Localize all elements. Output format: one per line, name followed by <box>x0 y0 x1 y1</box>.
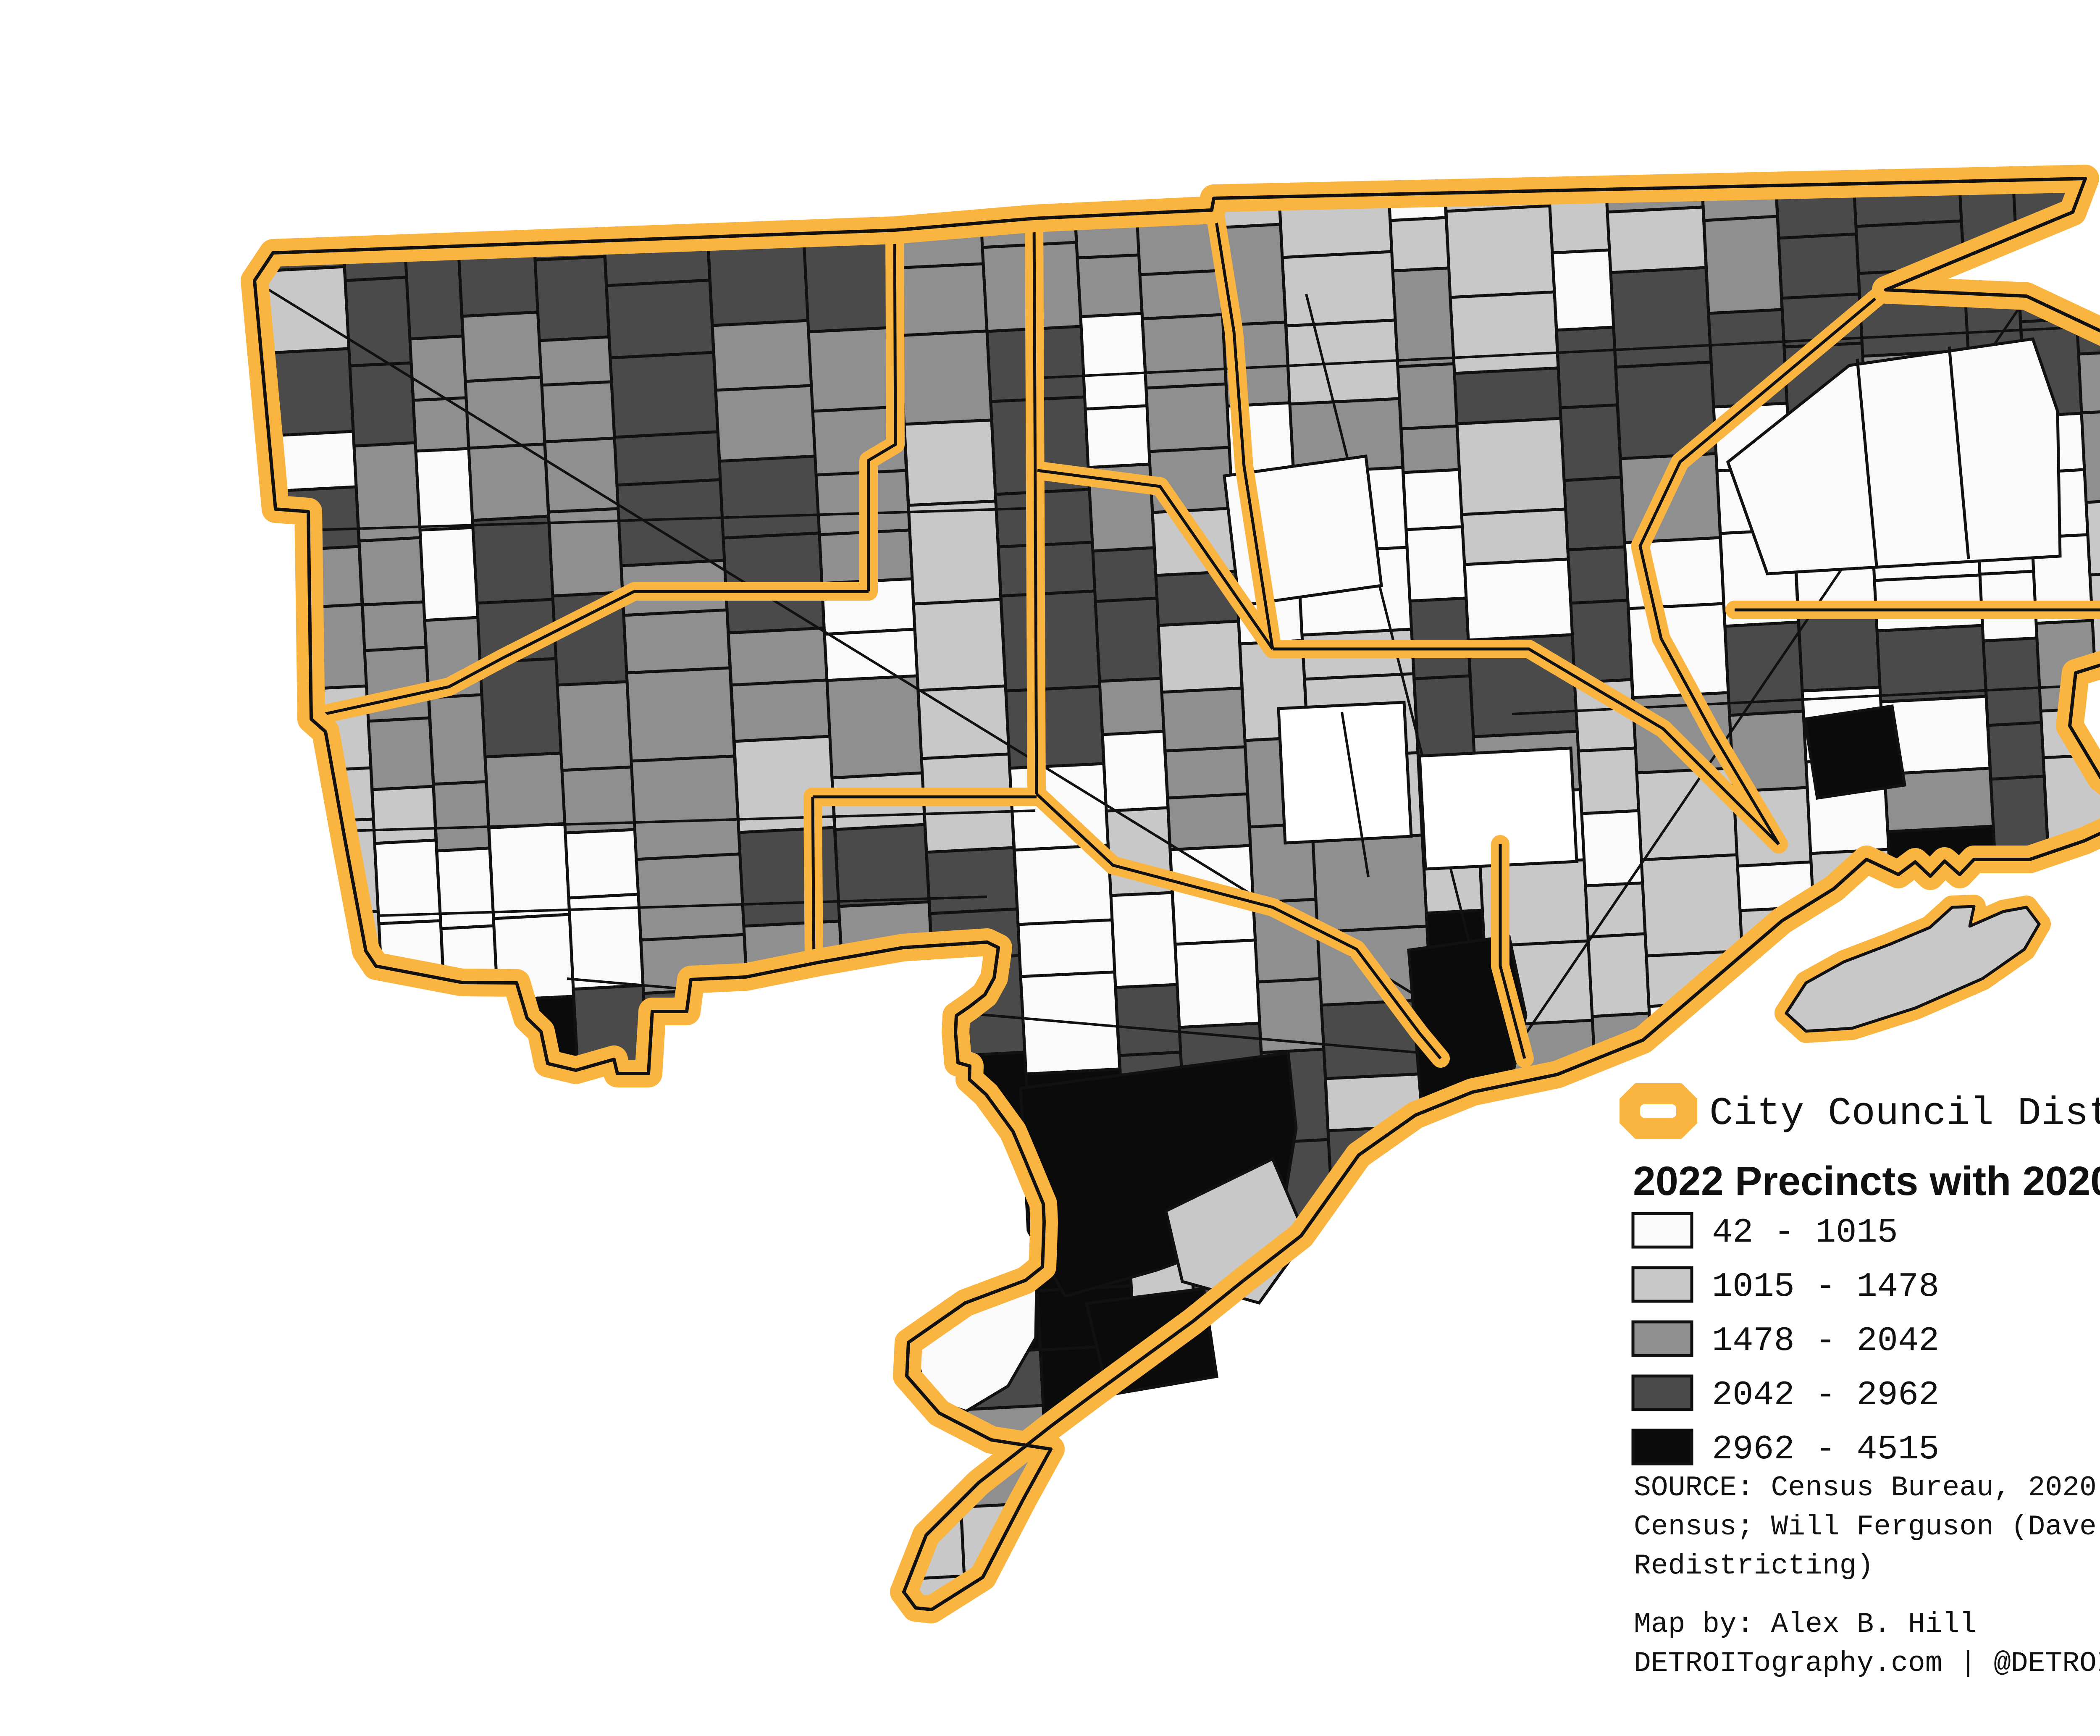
svg-text:Map by: Alex B. Hill: Map by: Alex B. Hill <box>1634 1608 1977 1641</box>
svg-text:City Council Districts (2012): City Council Districts (2012) <box>1709 1092 2100 1136</box>
svg-text:2022 Precincts with 2020 Popul: 2022 Precincts with 2020 Population <box>1633 1158 2100 1204</box>
svg-text:2042 - 2962: 2042 - 2962 <box>1712 1376 1939 1415</box>
svg-text:1015 - 1478: 1015 - 1478 <box>1712 1267 1939 1306</box>
svg-text:SOURCE: Census Bureau, 2020 De: SOURCE: Census Bureau, 2020 Decennial <box>1634 1472 2100 1504</box>
svg-text:2962 - 4515: 2962 - 4515 <box>1712 1430 1939 1469</box>
svg-text:42 - 1015: 42 - 1015 <box>1712 1213 1898 1252</box>
svg-text:Redistricting): Redistricting) <box>1634 1550 1874 1582</box>
svg-text:Census; Will Ferguson (Dave's: Census; Will Ferguson (Dave's <box>1634 1511 2100 1543</box>
svg-text:1478 - 2042: 1478 - 2042 <box>1712 1321 1939 1360</box>
svg-text:DETROITography.com | @DETROITo: DETROITography.com | @DETROITography <box>1634 1647 2100 1680</box>
